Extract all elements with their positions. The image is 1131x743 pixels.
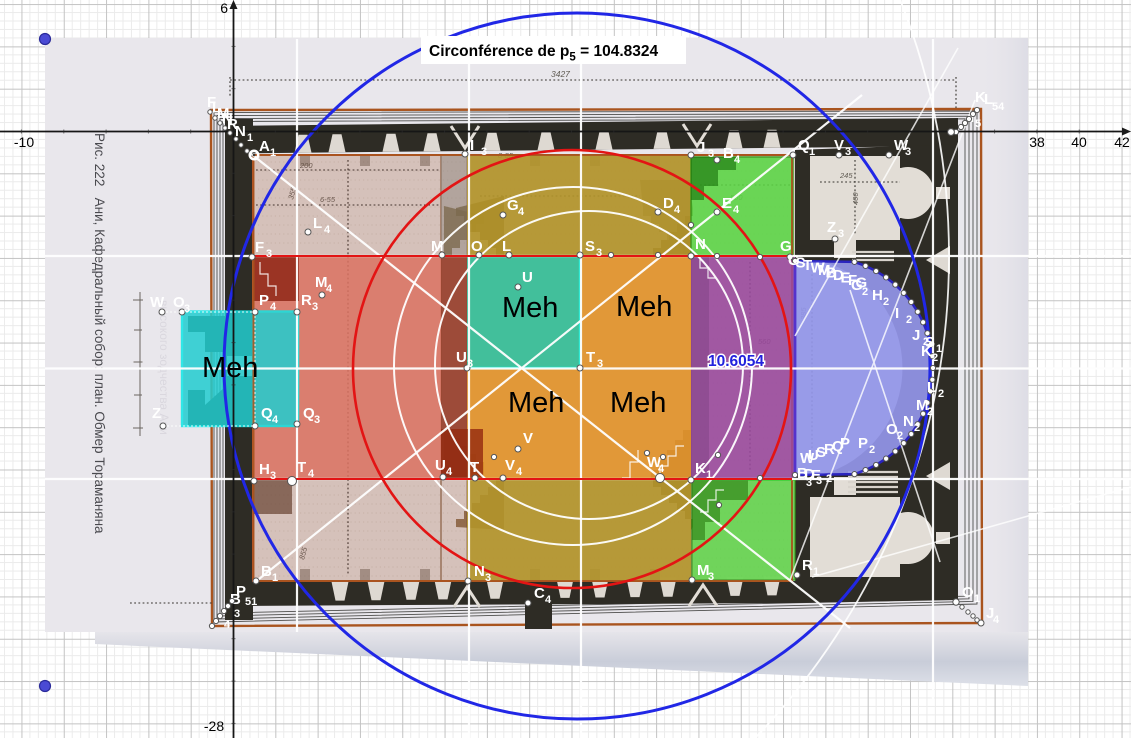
svg-text:2: 2 <box>914 422 920 434</box>
svg-text:1: 1 <box>270 147 276 159</box>
svg-text:V: V <box>834 137 844 154</box>
svg-text:J: J <box>912 327 920 344</box>
svg-text:Meh: Meh <box>508 387 564 419</box>
svg-text:Z: Z <box>827 219 836 236</box>
svg-text:3: 3 <box>485 572 491 584</box>
svg-text:1: 1 <box>974 593 980 605</box>
svg-text:Z: Z <box>152 405 161 422</box>
svg-text:T: T <box>297 459 306 476</box>
svg-text:M: M <box>431 238 444 255</box>
svg-text:2: 2 <box>906 314 912 326</box>
svg-text:J: J <box>697 139 705 156</box>
svg-text:4: 4 <box>545 594 552 606</box>
svg-text:1: 1 <box>813 566 819 578</box>
svg-text:3: 3 <box>266 248 272 260</box>
svg-text:S: S <box>585 238 595 255</box>
svg-text:S: S <box>925 334 935 351</box>
svg-text:3: 3 <box>845 146 851 158</box>
svg-text:245: 245 <box>839 171 853 180</box>
svg-text:3: 3 <box>481 146 487 158</box>
svg-text:2: 2 <box>883 296 889 308</box>
svg-text:O: O <box>962 584 974 601</box>
svg-text:1: 1 <box>247 132 253 144</box>
svg-text:42: 42 <box>1114 134 1130 150</box>
svg-text:38: 38 <box>1029 134 1045 150</box>
svg-text:4: 4 <box>270 301 277 313</box>
svg-text:4: 4 <box>674 204 681 216</box>
svg-text:40: 40 <box>1071 134 1087 150</box>
svg-text:3: 3 <box>314 414 320 426</box>
svg-text:F: F <box>255 239 264 256</box>
svg-text:1: 1 <box>809 146 815 158</box>
svg-text:B: B <box>261 563 272 580</box>
svg-text:N: N <box>695 236 706 253</box>
svg-text:T: T <box>586 349 595 366</box>
svg-text:H: H <box>259 461 270 478</box>
svg-text:I: I <box>470 137 474 154</box>
svg-text:3: 3 <box>708 571 714 583</box>
svg-text:4: 4 <box>308 468 315 480</box>
svg-text:V: V <box>505 457 515 474</box>
svg-text:U: U <box>522 269 533 286</box>
svg-text:G: G <box>856 275 868 292</box>
svg-text:2: 2 <box>927 406 933 418</box>
svg-text:2: 2 <box>826 473 832 485</box>
svg-text:4: 4 <box>733 204 740 216</box>
svg-text:3: 3 <box>597 358 603 370</box>
svg-text:3: 3 <box>596 247 602 259</box>
svg-text:Meh: Meh <box>616 291 672 323</box>
svg-text:5: 5 <box>975 118 981 130</box>
svg-text:3: 3 <box>806 477 812 489</box>
svg-text:3: 3 <box>312 301 318 313</box>
svg-text:N: N <box>474 563 485 580</box>
svg-text:4: 4 <box>993 614 1000 626</box>
svg-text:3427: 3427 <box>551 69 570 79</box>
svg-text:P: P <box>259 292 269 309</box>
svg-text:L: L <box>313 215 322 232</box>
svg-text:D: D <box>663 195 674 212</box>
svg-text:4: 4 <box>326 283 333 295</box>
svg-text:O: O <box>471 238 483 255</box>
svg-text:4: 4 <box>446 466 453 478</box>
svg-text:L: L <box>927 379 936 396</box>
svg-text:-28: -28 <box>204 718 224 734</box>
svg-text:54: 54 <box>992 101 1005 113</box>
svg-text:P: P <box>840 435 850 452</box>
svg-text:B: B <box>723 145 734 162</box>
svg-text:3: 3 <box>184 303 190 315</box>
svg-text:3: 3 <box>270 470 276 482</box>
svg-text:G: G <box>507 197 519 214</box>
svg-text:Рис. 222 Ани, Кафедральный с: Рис. 222 Ани, Кафедральный собор: план. … <box>92 133 107 534</box>
svg-text:A: A <box>259 138 270 155</box>
svg-text:Meh: Meh <box>202 352 258 384</box>
svg-text:W: W <box>150 294 165 311</box>
svg-text:4: 4 <box>324 224 331 236</box>
svg-text:H: H <box>872 287 883 304</box>
svg-text:3: 3 <box>816 475 822 487</box>
svg-text:51: 51 <box>245 596 257 608</box>
svg-text:4: 4 <box>516 466 523 478</box>
svg-text:Meh: Meh <box>610 387 666 419</box>
svg-text:V: V <box>523 430 533 447</box>
svg-text:4: 4 <box>734 154 741 166</box>
svg-text:U: U <box>435 457 446 474</box>
svg-text:E: E <box>722 195 732 212</box>
svg-text:P: P <box>858 435 868 452</box>
svg-text:3: 3 <box>838 228 844 240</box>
svg-text:I: I <box>895 305 899 322</box>
svg-text:R: R <box>301 292 312 309</box>
svg-text:C: C <box>534 585 545 602</box>
svg-text:1: 1 <box>272 572 278 584</box>
svg-text:1: 1 <box>706 469 712 481</box>
svg-text:R: R <box>802 557 813 574</box>
svg-text:K: K <box>695 460 706 477</box>
svg-text:1: 1 <box>936 343 942 355</box>
svg-text:L: L <box>502 238 511 255</box>
svg-text:3: 3 <box>708 148 714 160</box>
svg-text:2: 2 <box>938 388 944 400</box>
svg-text:3: 3 <box>234 608 240 620</box>
svg-text:Meh: Meh <box>502 292 558 324</box>
svg-text:4: 4 <box>272 414 279 426</box>
svg-text:400: 400 <box>851 192 860 205</box>
svg-text:-10: -10 <box>14 134 34 150</box>
svg-text:T: T <box>470 459 479 476</box>
svg-text:2: 2 <box>897 430 903 442</box>
svg-text:4: 4 <box>518 206 525 218</box>
svg-text:2: 2 <box>869 444 875 456</box>
svg-text:3: 3 <box>905 146 911 158</box>
svg-text:10.6054: 10.6054 <box>708 353 764 370</box>
svg-text:6: 6 <box>220 0 228 16</box>
svg-text:N: N <box>903 413 914 430</box>
svg-text:U: U <box>456 349 467 366</box>
svg-text:4: 4 <box>224 619 231 631</box>
svg-text:3: 3 <box>467 358 473 370</box>
